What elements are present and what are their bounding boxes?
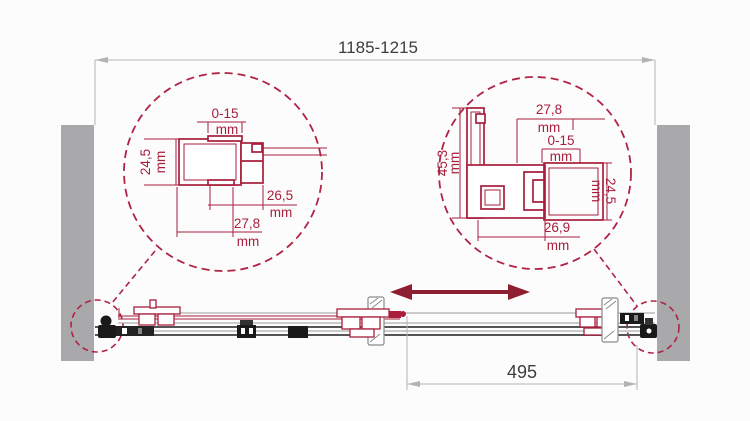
left-height-unit: mm [153,151,168,174]
left-adjustment-dimension: 0-15 mm [197,106,246,137]
dimension-arrow-right-icon [642,57,655,63]
right-adjustment-value: 0-15 [547,133,574,148]
diagram-canvas: 1185-1215 0-15 mm 24,5 [0,0,750,421]
right-door-height-unit: mm [589,180,604,203]
dimension-arrow-right-icon [624,381,637,387]
left-wall [61,125,94,361]
right-adjustment-unit: mm [550,149,573,164]
left-inner-width-dimension: 26,5 mm [208,185,297,220]
right-inner-width-unit: mm [547,238,570,253]
left-inner-width-value: 26,5 [267,188,293,203]
left-adjustment-unit: mm [216,122,239,137]
dimension-arrow-left-icon [407,381,420,387]
left-outer-width-value: 27,8 [234,216,260,231]
left-profile-section: 0-15 mm 24,5 mm 26,5 mm 27,8 [138,106,327,249]
right-height-unit: mm [447,152,462,175]
slide-direction-arrow-icon [390,284,530,300]
left-outer-width-dimension: 27,8 mm [177,187,262,249]
left-roller-carriage [134,300,180,325]
right-wall [657,125,690,361]
left-adjustment-value: 0-15 [211,106,238,121]
left-height-value: 24,5 [138,149,153,175]
door-assembly [95,297,657,345]
right-outer-width-value: 27,8 [536,102,562,117]
overall-width-dimension: 1185-1215 [95,38,655,125]
center-stop [288,326,308,338]
right-door-height-value: 24,5 [603,178,618,204]
right-inner-width-dimension: 26,9 mm [478,220,580,253]
left-outer-width-unit: mm [237,234,260,249]
right-adjustment-dimension: 0-15 mm [542,133,580,164]
dimension-arrow-left-icon [95,57,108,63]
left-inner-width-unit: mm [270,205,293,220]
right-height-dimension: 45,3 mm [435,108,467,218]
overall-width-label: 1185-1215 [338,38,418,57]
left-height-dimension: 24,5 mm [138,139,179,185]
right-profile-section: 27,8 mm 0-15 mm 45,3 mm 24,5 [435,102,618,253]
right-inner-width-value: 26,9 [544,220,570,235]
slide-width-label: 495 [507,362,537,382]
shower-door-technical-diagram: 1185-1215 0-15 mm 24,5 [0,0,750,421]
left-callout-leader [112,251,155,303]
right-handle-bracket [602,298,618,342]
